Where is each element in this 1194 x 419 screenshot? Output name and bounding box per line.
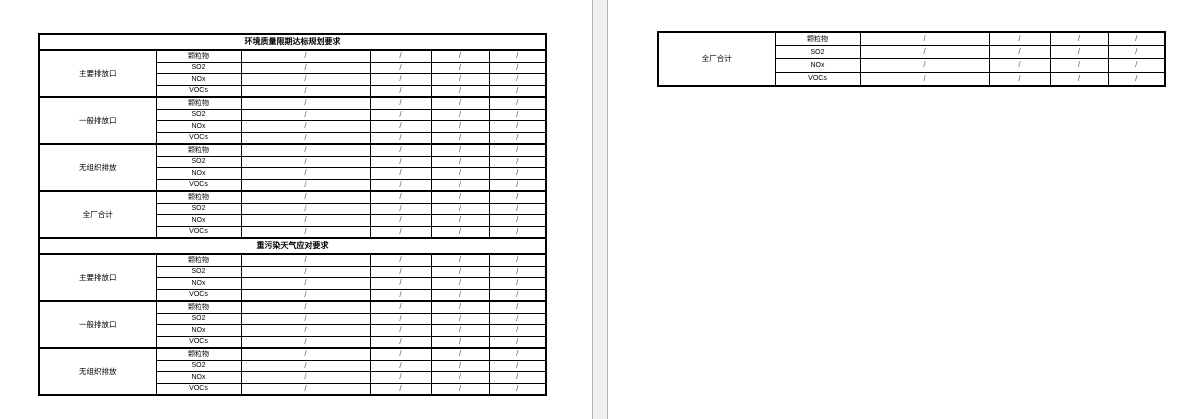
value-cell[interactable]: / xyxy=(489,179,546,191)
value-cell[interactable]: / xyxy=(431,360,489,372)
value-cell[interactable]: / xyxy=(370,132,431,144)
value-cell[interactable]: / xyxy=(370,313,431,325)
value-cell[interactable]: / xyxy=(241,254,370,266)
value-cell[interactable]: / xyxy=(370,85,431,97)
value-cell[interactable]: / xyxy=(431,132,489,144)
value-cell[interactable]: / xyxy=(431,109,489,121)
value-cell[interactable]: / xyxy=(241,360,370,372)
pollutant-label-cell[interactable]: 颗粒物 xyxy=(775,32,860,46)
value-cell[interactable]: / xyxy=(241,156,370,168)
value-cell[interactable]: / xyxy=(241,348,370,360)
value-cell[interactable]: / xyxy=(431,121,489,133)
value-cell[interactable]: / xyxy=(370,144,431,156)
value-cell[interactable]: / xyxy=(241,215,370,227)
outlet-group-label-cell[interactable]: 一般排放口 xyxy=(39,301,156,348)
value-cell[interactable]: / xyxy=(489,215,546,227)
value-cell[interactable]: / xyxy=(1050,32,1108,46)
outlet-group-label-cell[interactable]: 主要排放口 xyxy=(39,50,156,97)
value-cell[interactable]: / xyxy=(989,46,1050,59)
value-cell[interactable]: / xyxy=(489,336,546,348)
value-cell[interactable]: / xyxy=(370,360,431,372)
value-cell[interactable]: / xyxy=(431,144,489,156)
pollutant-label-cell[interactable]: 颗粒物 xyxy=(156,144,241,156)
value-cell[interactable]: / xyxy=(431,336,489,348)
value-cell[interactable]: / xyxy=(860,59,989,72)
value-cell[interactable]: / xyxy=(860,32,989,46)
value-cell[interactable]: / xyxy=(370,325,431,337)
value-cell[interactable]: / xyxy=(431,325,489,337)
value-cell[interactable]: / xyxy=(489,168,546,180)
pollutant-label-cell[interactable]: SO2 xyxy=(156,360,241,372)
value-cell[interactable]: / xyxy=(241,109,370,121)
value-cell[interactable]: / xyxy=(370,372,431,384)
value-cell[interactable]: / xyxy=(489,62,546,74)
table-row: 全厂合计颗粒物//// xyxy=(658,32,1165,46)
value-cell[interactable]: / xyxy=(241,121,370,133)
value-cell[interactable]: / xyxy=(1050,59,1108,72)
value-cell[interactable]: / xyxy=(370,215,431,227)
section-title[interactable]: 环境质量限期达标规划要求 xyxy=(39,34,546,50)
value-cell[interactable]: / xyxy=(241,74,370,86)
value-cell[interactable]: / xyxy=(241,144,370,156)
value-cell[interactable]: / xyxy=(1050,72,1108,86)
pollutant-label-cell[interactable]: NOx xyxy=(775,59,860,72)
table-row: 全厂合计颗粒物//// xyxy=(39,191,546,203)
value-cell[interactable]: / xyxy=(241,301,370,313)
value-cell[interactable]: / xyxy=(370,179,431,191)
value-cell[interactable]: / xyxy=(241,266,370,278)
value-cell[interactable]: / xyxy=(431,74,489,86)
value-cell[interactable]: / xyxy=(489,301,546,313)
value-cell[interactable]: / xyxy=(860,46,989,59)
pollutant-label-cell[interactable]: VOCs xyxy=(156,336,241,348)
value-cell[interactable]: / xyxy=(489,313,546,325)
value-cell[interactable]: / xyxy=(241,85,370,97)
value-cell[interactable]: / xyxy=(431,289,489,301)
pollutant-label-cell[interactable]: 颗粒物 xyxy=(156,50,241,62)
pollutant-label-cell[interactable]: 颗粒物 xyxy=(156,301,241,313)
value-cell[interactable]: / xyxy=(489,191,546,203)
value-cell[interactable]: / xyxy=(1108,32,1165,46)
value-cell[interactable]: / xyxy=(370,289,431,301)
value-cell[interactable]: / xyxy=(489,144,546,156)
value-cell[interactable]: / xyxy=(370,383,431,395)
value-cell[interactable]: / xyxy=(431,254,489,266)
value-cell[interactable]: / xyxy=(431,62,489,74)
value-cell[interactable]: / xyxy=(989,32,1050,46)
section-title-row: 重污染天气应对要求 xyxy=(39,238,546,254)
table-row: 一般排放口颗粒物//// xyxy=(39,301,546,313)
outlet-group-label-cell[interactable]: 全厂合计 xyxy=(39,191,156,238)
value-cell[interactable]: / xyxy=(489,226,546,238)
pollutant-label-cell[interactable]: NOx xyxy=(156,121,241,133)
pollutant-label-cell[interactable]: NOx xyxy=(156,372,241,384)
value-cell[interactable]: / xyxy=(241,372,370,384)
value-cell[interactable]: / xyxy=(241,278,370,290)
pollutant-label-cell[interactable]: VOCs xyxy=(156,383,241,395)
value-cell[interactable]: / xyxy=(241,289,370,301)
value-cell[interactable]: / xyxy=(431,191,489,203)
value-cell[interactable]: / xyxy=(431,50,489,62)
outlet-group-label-cell[interactable]: 一般排放口 xyxy=(39,97,156,144)
pollutant-label-cell[interactable]: VOCs xyxy=(156,85,241,97)
value-cell[interactable]: / xyxy=(431,348,489,360)
emissions-requirements-table-page1: 环境质量限期达标规划要求主要排放口颗粒物////SO2////NOx////VO… xyxy=(38,33,547,396)
value-cell[interactable]: / xyxy=(489,121,546,133)
value-cell[interactable]: / xyxy=(431,168,489,180)
pollutant-label-cell[interactable]: VOCs xyxy=(156,179,241,191)
value-cell[interactable]: / xyxy=(370,226,431,238)
pollutant-label-cell[interactable]: SO2 xyxy=(156,266,241,278)
value-cell[interactable]: / xyxy=(370,191,431,203)
pollutant-label-cell[interactable]: VOCs xyxy=(775,72,860,86)
value-cell[interactable]: / xyxy=(489,50,546,62)
value-cell[interactable]: / xyxy=(489,278,546,290)
value-cell[interactable]: / xyxy=(989,59,1050,72)
value-cell[interactable]: / xyxy=(860,72,989,86)
value-cell[interactable]: / xyxy=(489,325,546,337)
value-cell[interactable]: / xyxy=(489,372,546,384)
pollutant-label-cell[interactable]: 颗粒物 xyxy=(156,97,241,109)
pollutant-label-cell[interactable]: 颗粒物 xyxy=(156,348,241,360)
value-cell[interactable]: / xyxy=(241,383,370,395)
table-row: 一般排放口颗粒物//// xyxy=(39,97,546,109)
value-cell[interactable]: / xyxy=(1108,59,1165,72)
value-cell[interactable]: / xyxy=(370,348,431,360)
value-cell[interactable]: / xyxy=(489,360,546,372)
value-cell[interactable]: / xyxy=(370,168,431,180)
value-cell[interactable]: / xyxy=(489,97,546,109)
value-cell[interactable]: / xyxy=(431,156,489,168)
value-cell[interactable]: / xyxy=(489,254,546,266)
pollutant-label-cell[interactable]: NOx xyxy=(156,74,241,86)
value-cell[interactable]: / xyxy=(431,203,489,215)
value-cell[interactable]: / xyxy=(431,301,489,313)
value-cell[interactable]: / xyxy=(370,203,431,215)
value-cell[interactable]: / xyxy=(370,74,431,86)
pollutant-label-cell[interactable]: VOCs xyxy=(156,132,241,144)
pollutant-label-cell[interactable]: VOCs xyxy=(156,226,241,238)
value-cell[interactable]: / xyxy=(241,191,370,203)
pollutant-label-cell[interactable]: SO2 xyxy=(156,109,241,121)
value-cell[interactable]: / xyxy=(431,215,489,227)
value-cell[interactable]: / xyxy=(489,348,546,360)
value-cell[interactable]: / xyxy=(1108,72,1165,86)
value-cell[interactable]: / xyxy=(489,266,546,278)
value-cell[interactable]: / xyxy=(431,179,489,191)
value-cell[interactable]: / xyxy=(489,74,546,86)
pollutant-label-cell[interactable]: NOx xyxy=(156,278,241,290)
value-cell[interactable]: / xyxy=(370,156,431,168)
value-cell[interactable]: / xyxy=(431,266,489,278)
value-cell[interactable]: / xyxy=(489,109,546,121)
value-cell[interactable]: / xyxy=(489,132,546,144)
value-cell[interactable]: / xyxy=(489,156,546,168)
pollutant-label-cell[interactable]: SO2 xyxy=(156,156,241,168)
value-cell[interactable]: / xyxy=(431,97,489,109)
value-cell[interactable]: / xyxy=(370,266,431,278)
value-cell[interactable]: / xyxy=(370,50,431,62)
value-cell[interactable]: / xyxy=(489,203,546,215)
section-title[interactable]: 重污染天气应对要求 xyxy=(39,238,546,254)
table-row: 主要排放口颗粒物//// xyxy=(39,254,546,266)
value-cell[interactable]: / xyxy=(241,325,370,337)
value-cell[interactable]: / xyxy=(431,383,489,395)
value-cell[interactable]: / xyxy=(370,278,431,290)
pollutant-label-cell[interactable]: NOx xyxy=(156,168,241,180)
value-cell[interactable]: / xyxy=(241,179,370,191)
table-row: 主要排放口颗粒物//// xyxy=(39,50,546,62)
value-cell[interactable]: / xyxy=(370,254,431,266)
value-cell[interactable]: / xyxy=(370,62,431,74)
value-cell[interactable]: / xyxy=(241,62,370,74)
value-cell[interactable]: / xyxy=(1108,46,1165,59)
value-cell[interactable]: / xyxy=(241,226,370,238)
table-row: 无组织排放颗粒物//// xyxy=(39,144,546,156)
pollutant-label-cell[interactable]: 颗粒物 xyxy=(156,254,241,266)
value-cell[interactable]: / xyxy=(489,289,546,301)
value-cell[interactable]: / xyxy=(241,203,370,215)
value-cell[interactable]: / xyxy=(431,85,489,97)
outlet-group-label-cell[interactable]: 全厂合计 xyxy=(658,32,775,86)
pollutant-label-cell[interactable]: SO2 xyxy=(156,313,241,325)
pollutant-label-cell[interactable]: SO2 xyxy=(156,62,241,74)
value-cell[interactable]: / xyxy=(431,226,489,238)
outlet-group-label-cell[interactable]: 无组织排放 xyxy=(39,348,156,395)
document-page-2: 全厂合计颗粒物////SO2////NOx////VOCs//// xyxy=(607,0,1194,419)
value-cell[interactable]: / xyxy=(370,121,431,133)
value-cell[interactable]: / xyxy=(431,313,489,325)
value-cell[interactable]: / xyxy=(370,336,431,348)
pollutant-label-cell[interactable]: 颗粒物 xyxy=(156,191,241,203)
value-cell[interactable]: / xyxy=(1050,46,1108,59)
value-cell[interactable]: / xyxy=(989,72,1050,86)
value-cell[interactable]: / xyxy=(370,97,431,109)
pollutant-label-cell[interactable]: SO2 xyxy=(156,203,241,215)
section-title-row: 环境质量限期达标规划要求 xyxy=(39,34,546,50)
outlet-group-label-cell[interactable]: 无组织排放 xyxy=(39,144,156,191)
emissions-requirements-table-page2-continuation: 全厂合计颗粒物////SO2////NOx////VOCs//// xyxy=(657,31,1166,87)
value-cell[interactable]: / xyxy=(241,132,370,144)
value-cell[interactable]: / xyxy=(370,109,431,121)
value-cell[interactable]: / xyxy=(241,50,370,62)
table-row: 无组织排放颗粒物//// xyxy=(39,348,546,360)
value-cell[interactable]: / xyxy=(489,85,546,97)
value-cell[interactable]: / xyxy=(241,97,370,109)
value-cell[interactable]: / xyxy=(241,336,370,348)
value-cell[interactable]: / xyxy=(370,301,431,313)
outlet-group-label-cell[interactable]: 主要排放口 xyxy=(39,254,156,301)
pollutant-label-cell[interactable]: SO2 xyxy=(775,46,860,59)
pollutant-label-cell[interactable]: VOCs xyxy=(156,289,241,301)
document-page-1: 环境质量限期达标规划要求主要排放口颗粒物////SO2////NOx////VO… xyxy=(0,0,593,419)
value-cell[interactable]: / xyxy=(431,278,489,290)
pollutant-label-cell[interactable]: NOx xyxy=(156,215,241,227)
value-cell[interactable]: / xyxy=(489,383,546,395)
pollutant-label-cell[interactable]: NOx xyxy=(156,325,241,337)
value-cell[interactable]: / xyxy=(241,168,370,180)
value-cell[interactable]: / xyxy=(241,313,370,325)
value-cell[interactable]: / xyxy=(431,372,489,384)
